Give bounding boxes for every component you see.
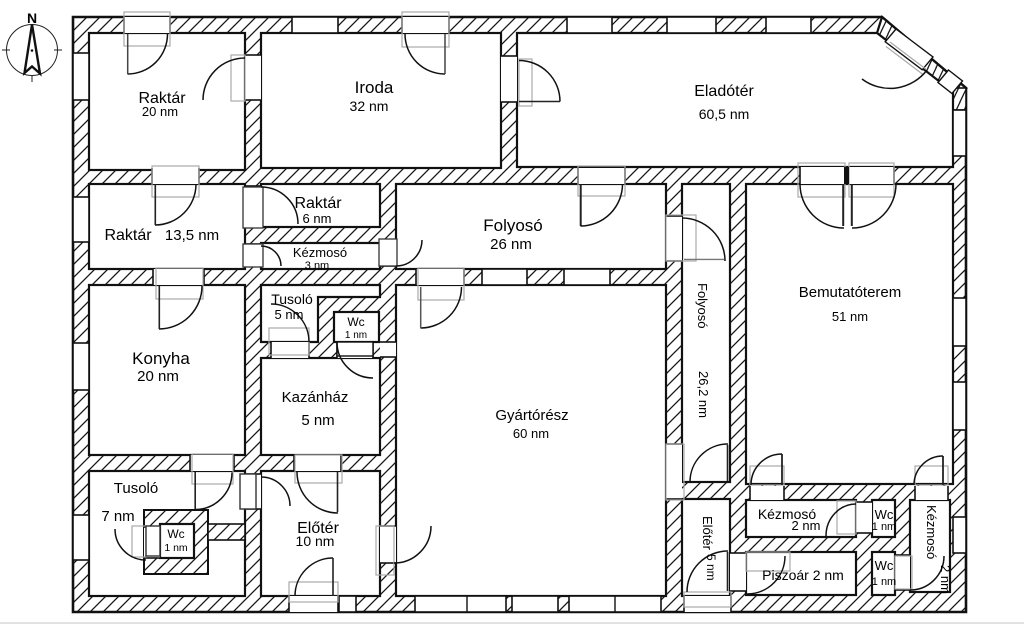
svg-text:2 nm: 2 nm xyxy=(792,518,821,533)
svg-text:3 nm: 3 nm xyxy=(305,260,329,272)
svg-text:7 nm: 7 nm xyxy=(101,508,134,525)
svg-text:Wc: Wc xyxy=(347,315,364,329)
svg-text:60,5 nm: 60,5 nm xyxy=(699,106,750,122)
svg-text:32 nm: 32 nm xyxy=(350,98,389,114)
svg-text:Konyha: Konyha xyxy=(132,349,190,368)
svg-text:Raktár: Raktár xyxy=(294,195,342,212)
svg-text:1 nm: 1 nm xyxy=(872,576,896,588)
svg-text:N: N xyxy=(27,10,37,26)
svg-text:Wc: Wc xyxy=(875,507,894,522)
svg-text:1 nm: 1 nm xyxy=(164,542,188,554)
svg-text:Folyosó: Folyosó xyxy=(695,283,710,329)
svg-text:13,5 nm: 13,5 nm xyxy=(165,227,219,244)
svg-text:Tusoló: Tusoló xyxy=(271,291,313,307)
svg-text:5 nm: 5 nm xyxy=(275,307,304,322)
svg-text:Folyosó: Folyosó xyxy=(483,216,543,235)
svg-text:1 nm: 1 nm xyxy=(872,521,896,533)
svg-text:Kézmosó: Kézmosó xyxy=(924,505,939,559)
svg-text:Wc: Wc xyxy=(167,527,184,541)
svg-text:60 nm: 60 nm xyxy=(513,426,549,441)
svg-text:Kézmosó: Kézmosó xyxy=(293,245,347,260)
svg-text:51 nm: 51 nm xyxy=(832,309,868,324)
svg-text:Iroda: Iroda xyxy=(355,78,394,97)
svg-text:20 nm: 20 nm xyxy=(137,368,179,385)
svg-text:2 nm: 2 nm xyxy=(938,565,953,594)
svg-text:10 nm: 10 nm xyxy=(296,533,335,549)
svg-text:26,2 nm: 26,2 nm xyxy=(696,371,711,418)
svg-text:5 nm: 5 nm xyxy=(301,412,334,429)
svg-text:Gyártórész: Gyártórész xyxy=(495,407,568,424)
svg-text:Kazánház: Kazánház xyxy=(282,389,349,406)
svg-text:Előtér: Előtér xyxy=(700,516,715,551)
svg-text:26 nm: 26 nm xyxy=(490,236,532,253)
svg-text:Wc: Wc xyxy=(875,558,894,573)
svg-text:5 nm: 5 nm xyxy=(704,554,718,581)
svg-text:1 nm: 1 nm xyxy=(345,330,367,341)
svg-text:Piszoár 2 nm: Piszoár 2 nm xyxy=(762,567,844,583)
svg-text:20 nm: 20 nm xyxy=(142,104,178,119)
svg-text:Bemutatóterem: Bemutatóterem xyxy=(799,284,902,301)
svg-text:6 nm: 6 nm xyxy=(303,211,332,226)
svg-text:Eladótér: Eladótér xyxy=(694,83,754,100)
svg-text:Tusoló: Tusoló xyxy=(114,480,158,497)
svg-text:Raktár: Raktár xyxy=(104,227,152,244)
